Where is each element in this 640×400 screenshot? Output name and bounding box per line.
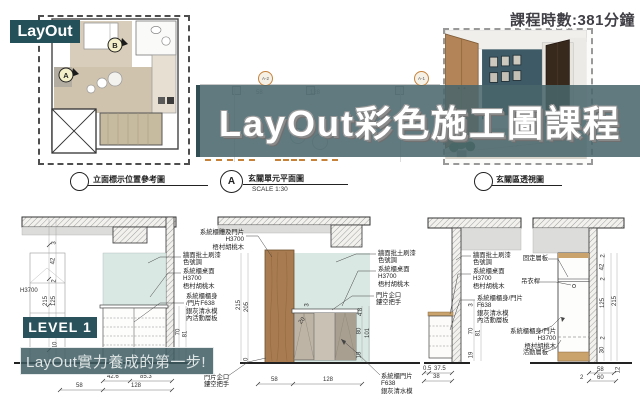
annotation-line: H3700	[183, 275, 214, 282]
annotation-line: 梧村胡桃木	[473, 283, 504, 290]
layout-badge: LayOut	[10, 20, 80, 43]
dim-label: 0.5	[423, 366, 431, 372]
dim-label: 3	[52, 241, 58, 244]
course-duration: 課程時數:381分鐘	[510, 9, 635, 30]
section-mark-a: A	[220, 170, 243, 193]
dim-label: 58	[597, 367, 604, 373]
elevation-ref-symbol	[70, 172, 89, 191]
annotation-line: 系統櫃體及門片	[188, 229, 244, 236]
dim-label: 205	[244, 302, 250, 312]
annotation-line: 系統櫃桌面	[473, 268, 504, 275]
dim-label: 38	[433, 374, 440, 380]
material-annotation: 系統櫃體及門片 H3700 梧村胡桃木	[188, 229, 244, 251]
annotation-line: 梧村胡桃木	[188, 244, 244, 251]
perspective-symbol	[474, 172, 493, 191]
annotation-line: 銀灰清水模	[381, 388, 412, 395]
dim-label: 58	[271, 377, 278, 383]
material-annotation: 吊衣桿	[518, 278, 540, 285]
material-annotation: 系統櫃桌面 H3700 梧村胡桃木	[473, 268, 504, 290]
course-title: LayOut彩色施工圖課程	[219, 95, 621, 147]
material-annotation: 系統櫃櫃身/門片 H3700 梧村胡桃木	[498, 328, 556, 350]
annotation-line: H3700	[378, 273, 409, 280]
dim-label: 81	[182, 331, 188, 338]
level-badge: LEVEL 1	[23, 317, 97, 338]
dim-label: 125	[600, 298, 606, 308]
section-underline	[88, 185, 208, 186]
material-annotation: 牆面批土刷漆 色號調	[378, 250, 416, 265]
section-underline	[492, 185, 562, 186]
annotation-line: F638	[381, 380, 412, 387]
annotation-line: 梧村胡桃木	[378, 281, 409, 288]
dim-label: 3	[469, 303, 475, 306]
section-title: 玄關單元平面圖	[248, 173, 304, 184]
annotation-line: 吊衣桿	[518, 278, 540, 285]
material-annotation: 牆面批土刷漆 色號調	[473, 252, 511, 267]
annotation-line: 活動層板	[522, 349, 548, 356]
slogan-text: LayOut實力養成的第一步!	[21, 351, 206, 372]
dim-label: 81	[475, 330, 481, 337]
course-promo-image: 58 128 A-2 A-1	[0, 0, 640, 400]
dim-label: 3	[305, 303, 311, 306]
section-scale: SCALE 1:30	[252, 186, 288, 193]
material-annotation: 門片企口 鏤空把手	[376, 292, 401, 307]
dim-label: 215	[612, 296, 618, 306]
section-mark-letter: A	[228, 176, 235, 187]
annotation-line: F638	[477, 302, 523, 309]
dim-label: H3700	[20, 288, 38, 294]
annotation-line: 系統櫃櫃身/門片	[498, 328, 556, 335]
slogan-bar: LayOut實力養成的第一步!	[20, 347, 214, 375]
material-annotation: 系統櫃桌面 H3700 梧村胡桃木	[183, 268, 214, 290]
material-annotation: 系統櫃櫃身 /門片F638 銀灰清水模 內活動層板	[186, 293, 217, 323]
dim-label: 4.8	[358, 308, 364, 316]
dim-label: 60	[597, 375, 604, 381]
dim-label: 80	[356, 328, 362, 335]
dim-label: 2	[52, 279, 58, 282]
annotation-line: H3700	[498, 335, 556, 342]
dim-label: 58	[76, 383, 83, 389]
annotation-line: 固定層板	[518, 255, 548, 262]
material-annotation: 牆面批土刷漆 色號調	[183, 252, 221, 267]
dim-label: 37.5	[434, 366, 446, 372]
annotation-line: 色號調	[183, 259, 221, 266]
annotation-line: H3700	[188, 236, 244, 243]
course-title-banner: LayOut彩色施工圖課程	[196, 85, 640, 157]
annotation-line: 系統櫃櫃身/門片	[477, 295, 523, 302]
dim-label: 18	[356, 352, 362, 359]
annotation-line: 色號調	[378, 257, 416, 264]
material-annotation: 系統櫃櫃身/門片 F638 銀灰清水模 內活動層板	[477, 295, 523, 325]
marker-b-label: B	[112, 41, 118, 50]
material-annotation: 系統櫃門片 F638 銀灰清水模	[381, 373, 412, 395]
annotation-line: /門片F638	[186, 300, 217, 307]
dim-label: 2	[601, 277, 607, 280]
section-title: 立面標示位置參考圖	[93, 174, 165, 185]
annotation-line: 色號調	[473, 259, 511, 266]
annotation-line: 系統櫃桌面	[183, 268, 214, 275]
dim-label: 19	[468, 352, 474, 359]
material-annotation: 活動層板	[522, 349, 548, 356]
dim-label: 10	[243, 358, 249, 365]
dim-label: 215	[43, 296, 49, 306]
dim-label: 2	[601, 254, 607, 257]
annotation-line: 鏤空把手	[376, 299, 401, 306]
dim-label: 12	[615, 367, 621, 374]
material-annotation: 門片企口 鏤空把手	[204, 374, 229, 389]
dim-label: 42	[50, 258, 56, 265]
annotation-line: 鏤空把手	[204, 381, 229, 388]
dim-label: 101	[365, 328, 371, 338]
marker-a-label: A	[63, 71, 69, 80]
dim-label: 125	[51, 296, 57, 306]
material-annotation: 系統櫃桌面 H3700 梧村胡桃木	[378, 266, 409, 288]
annotation-line: 內活動層板	[186, 315, 217, 322]
annotation-line: 系統櫃門片	[381, 373, 412, 380]
dim-label: 2	[601, 336, 607, 339]
material-annotation: 固定層板	[518, 255, 548, 262]
annotation-line: 系統櫃桌面	[378, 266, 409, 273]
dim-label: 70	[175, 329, 181, 336]
dim-label: 30	[599, 347, 605, 354]
annotation-line: H3700	[473, 275, 504, 282]
dim-label: 70	[468, 328, 474, 335]
dim-label: 128	[323, 377, 333, 383]
dim-label: 215	[236, 300, 242, 310]
dim-label: 42	[599, 264, 605, 271]
annotation-line: 梧村胡桃木	[183, 283, 214, 290]
dim-label: 128	[131, 383, 141, 389]
dim-label: 2	[580, 375, 583, 381]
annotation-line: 內活動層板	[477, 317, 523, 324]
section-title: 玄關區透視圖	[496, 174, 544, 185]
